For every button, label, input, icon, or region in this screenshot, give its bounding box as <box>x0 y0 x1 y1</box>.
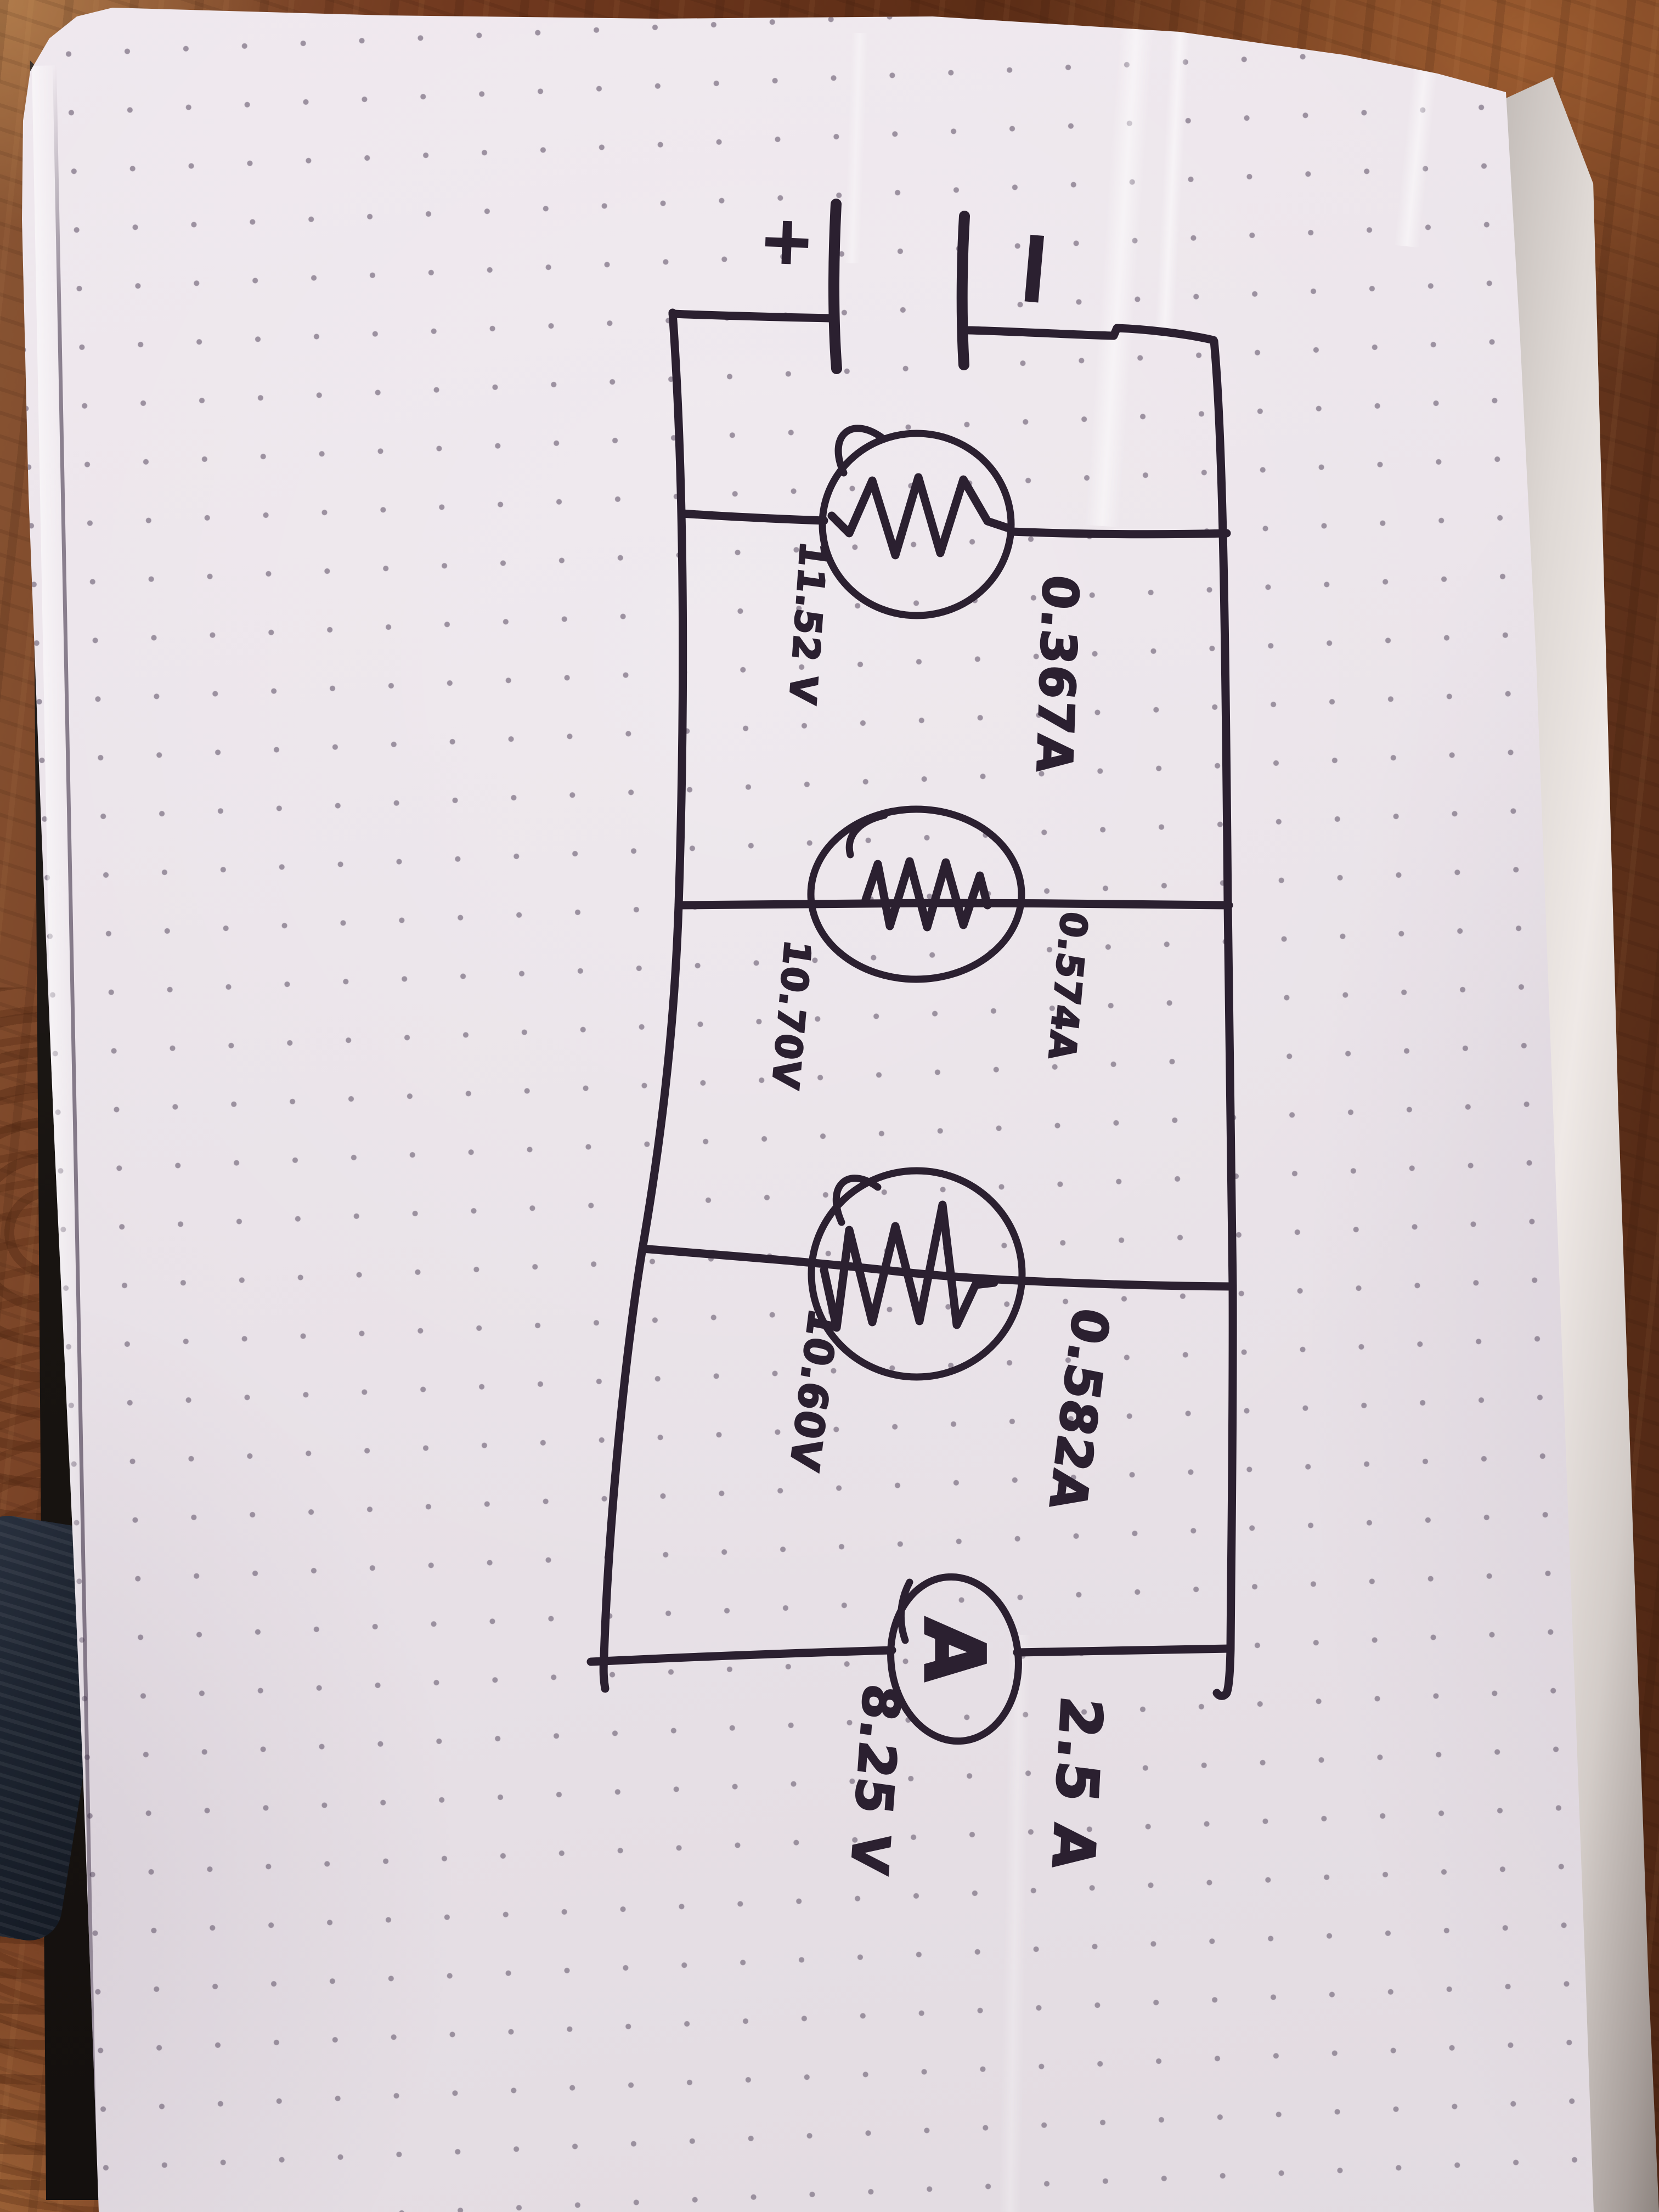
resistor-1-wire-right <box>1011 532 1227 534</box>
battery-plus-label: + <box>749 214 828 274</box>
resistor-3-wire <box>642 1249 1233 1286</box>
right-rail-wire <box>1214 341 1233 1696</box>
resistor-1-wire-left <box>682 513 824 521</box>
resistor-2-icon <box>811 809 1022 979</box>
battery-minus-label: − <box>973 220 1102 321</box>
resistor-1-icon <box>822 428 1011 616</box>
notebook-page: + − 0.367A 11.52 V 0.574A 10.70V 0.582A … <box>0 0 1659 2212</box>
battery-plate-negative <box>962 216 964 365</box>
circuit-drawing <box>0 0 1659 2212</box>
bottom-wire-left <box>591 1650 892 1662</box>
battery-icon <box>834 204 964 369</box>
left-rail-wire <box>603 313 682 1689</box>
battery-plate-positive <box>834 204 837 369</box>
resistor-2-zigzag <box>866 861 988 927</box>
ammeter-letter: A <box>906 1616 1001 1689</box>
battery-wire-right <box>969 328 1214 340</box>
resistor-1-current-label: 0.367A <box>1025 573 1088 777</box>
resistor-1-zigzag <box>832 477 1007 555</box>
battery-wire-left <box>673 314 830 318</box>
notebook-photo: + − 0.367A 11.52 V 0.574A 10.70V 0.582A … <box>0 0 1659 2212</box>
ammeter-current-label: 2.5 A <box>1039 1693 1115 1875</box>
bottom-wire-right <box>1017 1649 1230 1652</box>
